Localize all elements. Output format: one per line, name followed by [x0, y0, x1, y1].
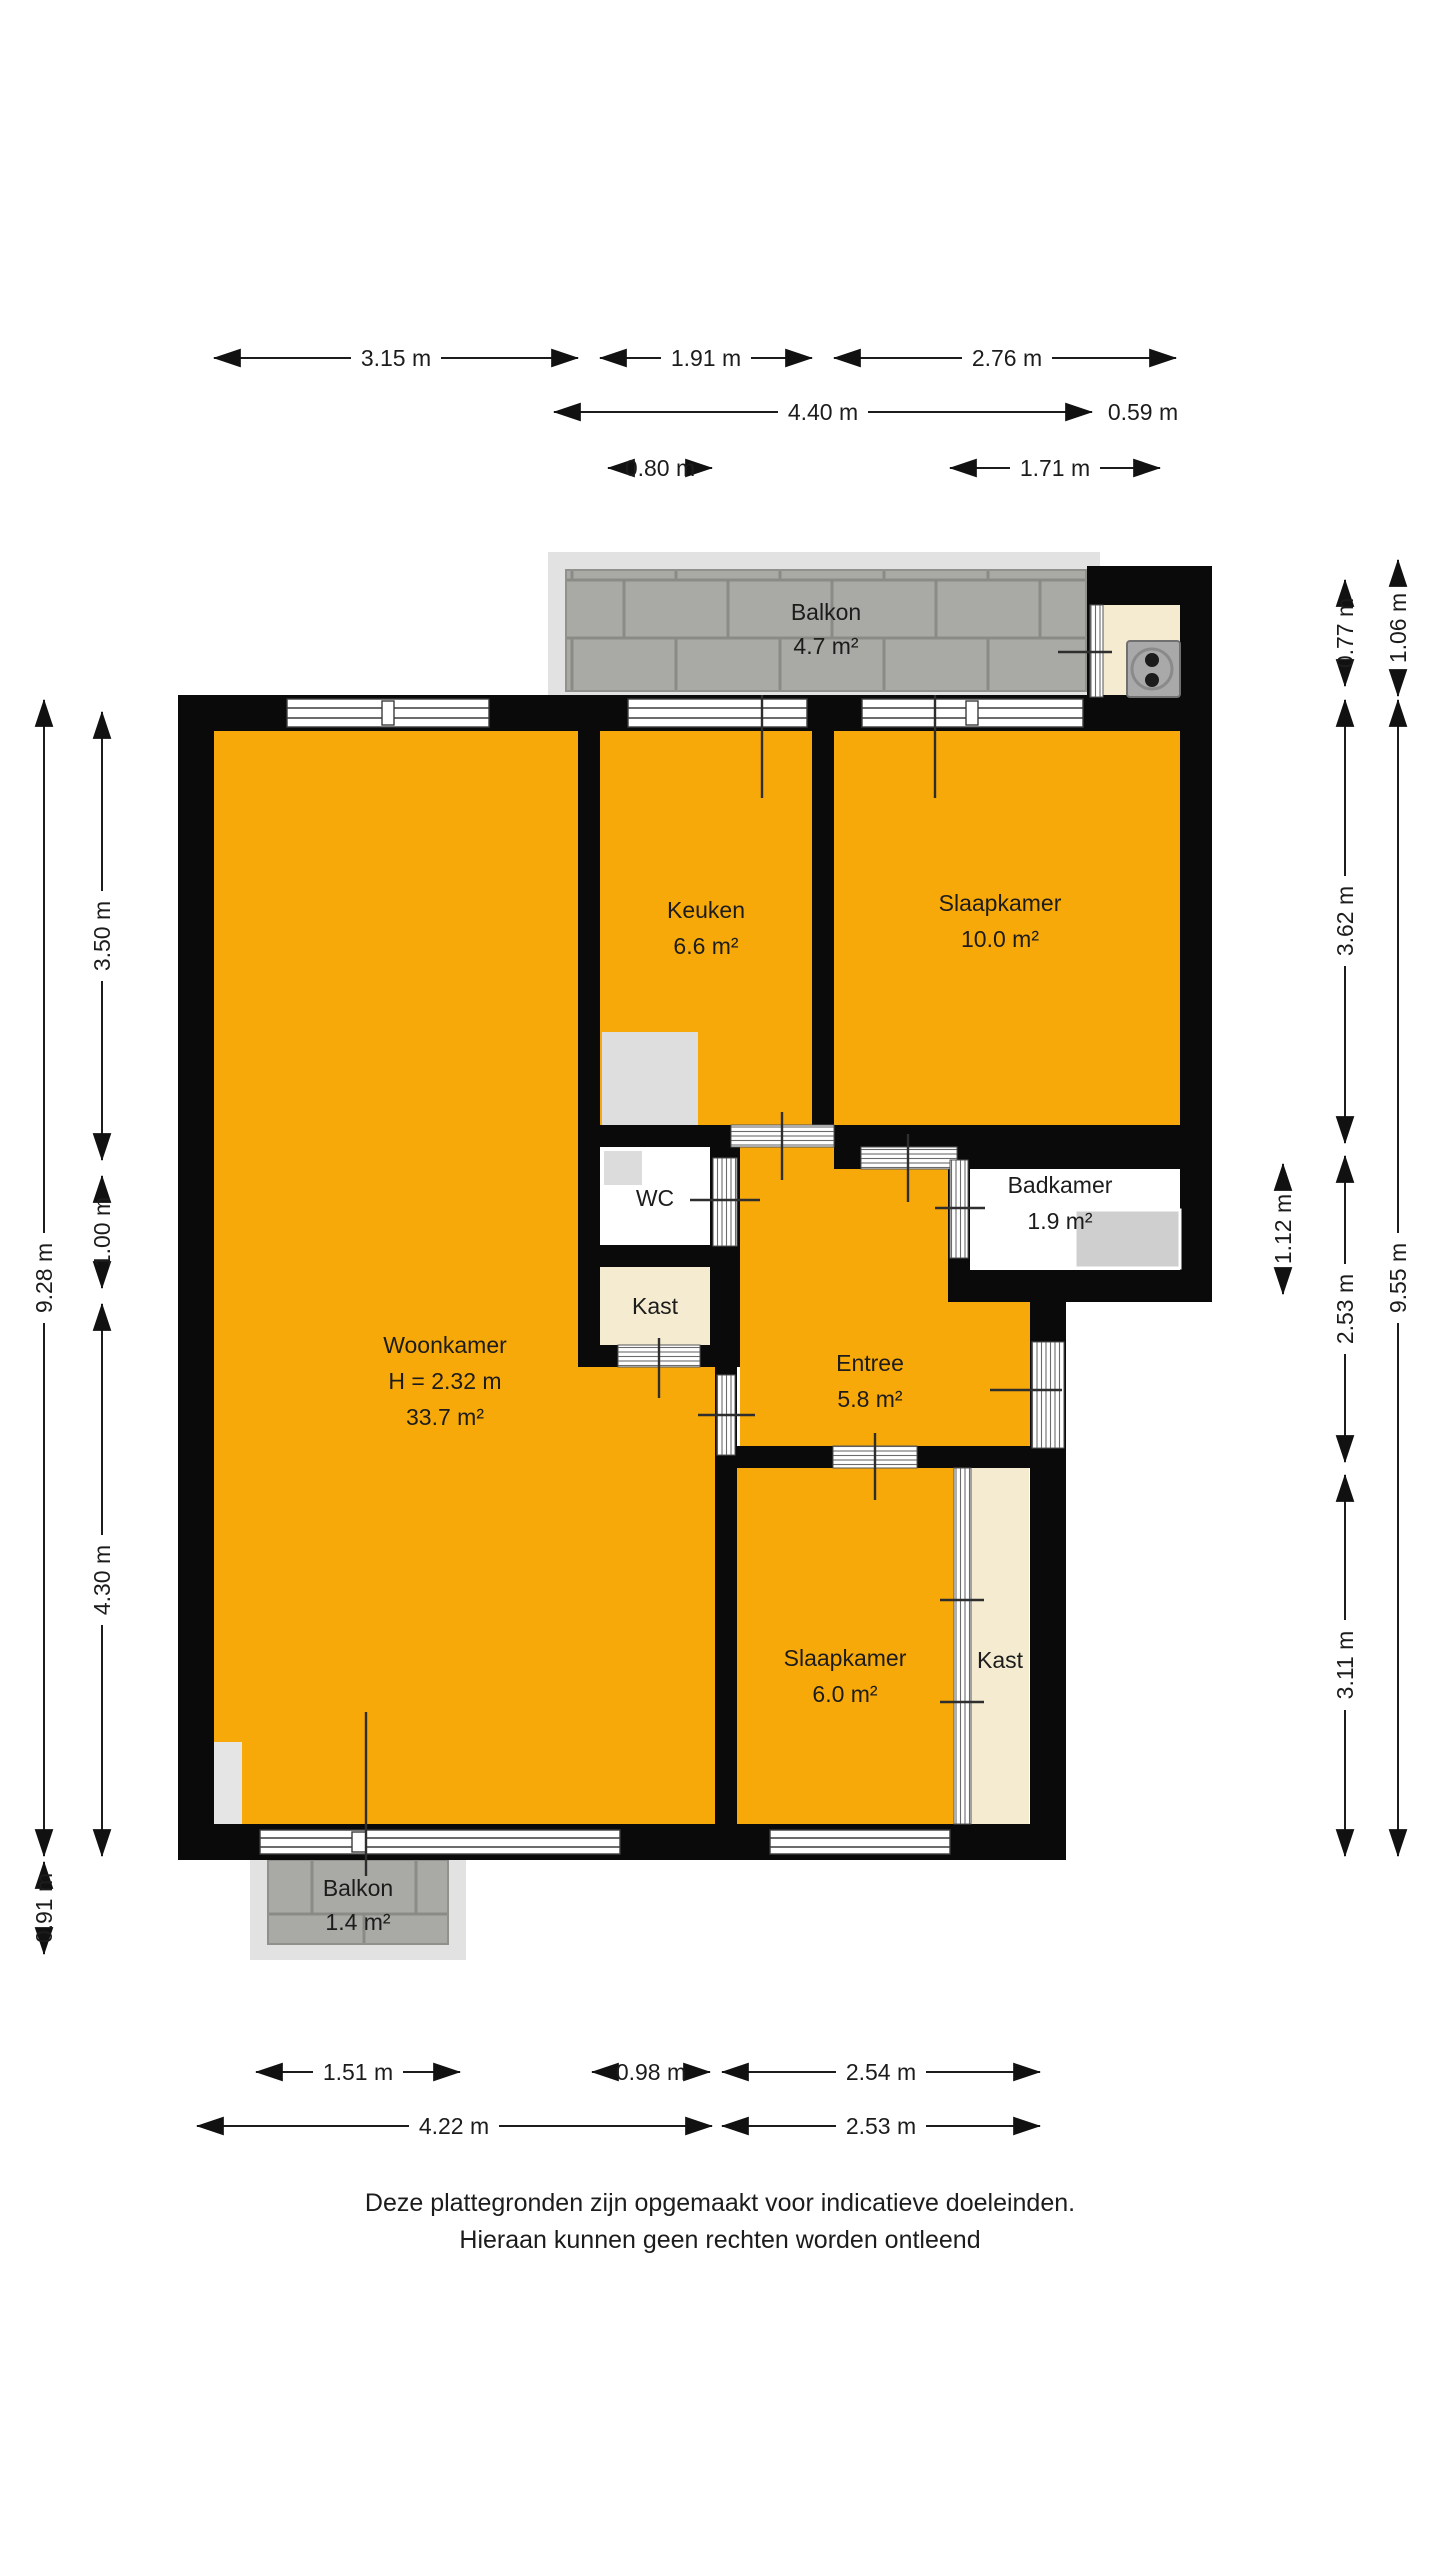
- svg-text:4.22 m: 4.22 m: [419, 2113, 489, 2139]
- svg-text:1.51 m: 1.51 m: [323, 2059, 393, 2085]
- svg-text:Balkon: Balkon: [323, 1875, 393, 1901]
- dimensions-top: 3.15 m 1.91 m 2.76 m 4.40 m 0.59 m 0.80 …: [214, 345, 1178, 481]
- svg-text:1.9 m²: 1.9 m²: [1027, 1208, 1093, 1234]
- dim-top-1-71: 1.71 m: [950, 455, 1160, 481]
- dim-left-1-00: 1.00 m: [89, 1176, 115, 1288]
- svg-text:Keuken: Keuken: [667, 897, 745, 923]
- svg-text:Kast: Kast: [977, 1647, 1024, 1673]
- svg-text:3.11 m: 3.11 m: [1332, 1631, 1358, 1700]
- svg-text:Deze plattegronden zijn opgema: Deze plattegronden zijn opgemaakt voor i…: [365, 2189, 1075, 2217]
- dim-right-1-06: 1.06 m: [1385, 560, 1411, 696]
- wc-sink: [604, 1151, 642, 1185]
- window-woonkamer-top: [287, 699, 489, 727]
- dim-left-9-28: 9.28 m: [31, 700, 57, 1856]
- dim-left-0-91: 0.91 m: [31, 1862, 57, 1954]
- svg-text:Kast: Kast: [632, 1293, 679, 1319]
- room-label-kast2: Kast: [977, 1647, 1024, 1673]
- svg-text:3.62 m: 3.62 m: [1332, 886, 1358, 956]
- svg-text:Entree: Entree: [836, 1350, 904, 1376]
- footer-disclaimer: Deze plattegronden zijn opgemaakt voor i…: [365, 2189, 1075, 2254]
- svg-text:9.55 m: 9.55 m: [1385, 1243, 1411, 1313]
- room-label-wc: WC: [636, 1185, 674, 1211]
- svg-text:0.77 m: 0.77 m: [1332, 598, 1358, 668]
- dimensions-right: 1.06 m 0.77 m 3.62 m 9.55 m: [1270, 560, 1411, 1856]
- svg-text:Badkamer: Badkamer: [1008, 1172, 1113, 1198]
- floorplan-drawing: Balkon 4.7 m² Keuken 6.6 m² Slaapkamer 1…: [0, 0, 1440, 2560]
- kitchen-counter: [602, 1032, 698, 1125]
- svg-text:H = 2.32 m: H = 2.32 m: [388, 1368, 501, 1394]
- svg-text:9.28 m: 9.28 m: [31, 1243, 57, 1313]
- dim-top-4-40: 4.40 m: [554, 399, 1092, 425]
- window-woonkamer-bottom: [260, 1830, 620, 1854]
- dim-right-3-11: 3.11 m: [1332, 1475, 1358, 1856]
- window-slaapkamer1-top: [862, 699, 1083, 727]
- svg-text:0.80 m: 0.80 m: [625, 455, 695, 481]
- svg-text:4.30 m: 4.30 m: [89, 1545, 115, 1615]
- svg-text:1.91 m: 1.91 m: [671, 345, 741, 371]
- svg-text:5.8 m²: 5.8 m²: [837, 1386, 903, 1412]
- dim-right-0-77: 0.77 m: [1332, 580, 1358, 686]
- dim-bottom-2-53: 2.53 m: [722, 2113, 1040, 2139]
- svg-text:4.40 m: 4.40 m: [788, 399, 858, 425]
- dim-top-0-80: 0.80 m: [608, 455, 712, 481]
- dim-right-3-62: 3.62 m: [1332, 700, 1358, 1143]
- svg-text:Balkon: Balkon: [791, 599, 861, 625]
- door-front: [1032, 1342, 1064, 1448]
- svg-text:1.00 m: 1.00 m: [89, 1197, 115, 1267]
- dimensions-bottom: 1.51 m 0.98 m 2.54 m 4.22 m 2.53 m: [197, 2059, 1040, 2139]
- svg-text:33.7 m²: 33.7 m²: [406, 1404, 484, 1430]
- svg-text:1.4 m²: 1.4 m²: [325, 1909, 391, 1935]
- floorplan-page: Balkon 4.7 m² Keuken 6.6 m² Slaapkamer 1…: [0, 0, 1440, 2560]
- svg-text:0.98 m: 0.98 m: [616, 2059, 686, 2085]
- svg-text:2.76 m: 2.76 m: [972, 345, 1042, 371]
- dim-right-1-12: 1.12 m: [1270, 1164, 1296, 1294]
- room-label-kast1: Kast: [632, 1293, 679, 1319]
- svg-text:3.50 m: 3.50 m: [89, 901, 115, 971]
- dim-top-2-76: 2.76 m: [834, 345, 1176, 371]
- svg-text:2.53 m: 2.53 m: [846, 2113, 916, 2139]
- svg-text:3.15 m: 3.15 m: [361, 345, 431, 371]
- room-kast2: [971, 1468, 1029, 1824]
- dim-top-3-15: 3.15 m: [214, 345, 578, 371]
- dimensions-left: 9.28 m 3.50 m 1.00 m 4.30 m: [31, 700, 115, 1954]
- door-kast2-sliding: [954, 1468, 971, 1824]
- svg-text:10.0 m²: 10.0 m²: [961, 926, 1039, 952]
- dim-top-1-91: 1.91 m: [600, 345, 812, 371]
- svg-text:0.59 m: 0.59 m: [1108, 399, 1178, 425]
- dim-left-3-50: 3.50 m: [89, 712, 115, 1160]
- svg-text:1.12 m: 1.12 m: [1270, 1194, 1296, 1264]
- dim-right-2-53: 2.53 m: [1332, 1156, 1358, 1462]
- window-keuken-top: [628, 699, 807, 727]
- dim-bottom-2-54: 2.54 m: [722, 2059, 1040, 2085]
- boiler-icon: [1127, 641, 1180, 697]
- svg-text:Slaapkamer: Slaapkamer: [939, 890, 1062, 916]
- svg-text:4.7 m²: 4.7 m²: [793, 633, 859, 659]
- svg-text:2.53 m: 2.53 m: [1332, 1274, 1358, 1344]
- dim-bottom-1-51: 1.51 m: [256, 2059, 460, 2085]
- door-wc: [713, 1158, 737, 1246]
- svg-text:Slaapkamer: Slaapkamer: [784, 1645, 907, 1671]
- svg-text:1.06 m: 1.06 m: [1385, 593, 1411, 663]
- svg-text:Hieraan kunnen geen rechten wo: Hieraan kunnen geen rechten worden ontle…: [459, 2226, 980, 2254]
- svg-text:Woonkamer: Woonkamer: [383, 1332, 507, 1358]
- svg-text:6.0 m²: 6.0 m²: [812, 1681, 878, 1707]
- wall-niche-2: [210, 1742, 242, 1830]
- svg-text:WC: WC: [636, 1185, 674, 1211]
- svg-text:0.91 m: 0.91 m: [31, 1873, 57, 1943]
- svg-text:1.71 m: 1.71 m: [1020, 455, 1090, 481]
- dim-right-9-55: 9.55 m: [1385, 700, 1411, 1856]
- svg-text:2.54 m: 2.54 m: [846, 2059, 916, 2085]
- svg-text:6.6 m²: 6.6 m²: [673, 933, 739, 959]
- dim-bottom-0-98: 0.98 m: [592, 2059, 710, 2085]
- dim-left-4-30: 4.30 m: [89, 1304, 115, 1856]
- dim-top-0-59: 0.59 m: [1108, 399, 1178, 425]
- dim-bottom-4-22: 4.22 m: [197, 2113, 712, 2139]
- window-slaapkamer2-bottom: [770, 1830, 950, 1854]
